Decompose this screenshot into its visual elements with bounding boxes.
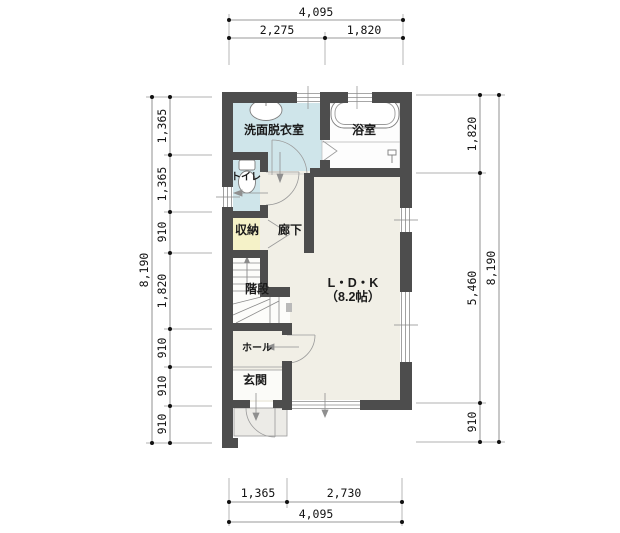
dim-right-seg3: 910 — [465, 412, 479, 433]
dim-right-seg1: 1,820 — [465, 117, 479, 152]
dim-bottom-total: 4,095 — [299, 507, 334, 521]
dim-top-total: 4,095 — [299, 5, 334, 19]
dim-left-seg2: 1,365 — [155, 167, 169, 202]
dim-top-seg2: 1,820 — [347, 23, 382, 37]
dim-top-seg1: 2,275 — [260, 23, 295, 37]
dim-left-total: 8,190 — [137, 253, 151, 288]
toilet-label: トイレ — [231, 171, 261, 183]
dim-bottom-seg2: 2,730 — [327, 486, 362, 500]
window-bottom-ldk — [292, 400, 360, 410]
ldk-size-label: （8.2帖） — [326, 289, 381, 304]
dim-left-seg5: 910 — [155, 338, 169, 359]
ldk-label: L・D・K — [328, 276, 379, 290]
porch-area — [234, 408, 287, 436]
washroom-label: 洗面脱衣室 — [244, 122, 304, 137]
stair-post — [286, 303, 292, 312]
dim-left-seg1: 1,365 — [155, 109, 169, 144]
dim-right-seg2: 5,460 — [465, 271, 479, 306]
corridor-label: 廊下 — [278, 222, 302, 237]
entrance-label: 玄関 — [243, 372, 267, 387]
dim-left-seg6: 910 — [155, 376, 169, 397]
dim-left-seg7: 910 — [155, 414, 169, 435]
dim-left-seg3: 910 — [155, 222, 169, 243]
dim-left-seg4: 1,820 — [155, 274, 169, 309]
floor-plan-drawing: 洗面脱衣室 浴室 トイレ 収納 廊下 階段 ホール 玄関 L・D・K （8.2帖… — [0, 0, 620, 533]
hall-label: ホール — [242, 342, 272, 354]
dim-bottom-seg1: 1,365 — [241, 486, 276, 500]
stairs-label: 階段 — [245, 281, 270, 296]
toilet-tank-icon — [239, 160, 255, 170]
floor-plan-page: 洗面脱衣室 浴室 トイレ 収納 廊下 階段 ホール 玄関 L・D・K （8.2帖… — [0, 0, 620, 533]
bath-faucet-icon — [388, 150, 396, 155]
bath-label: 浴室 — [352, 122, 376, 137]
storage-label: 収納 — [235, 222, 259, 237]
dim-right-total: 8,190 — [484, 251, 498, 286]
